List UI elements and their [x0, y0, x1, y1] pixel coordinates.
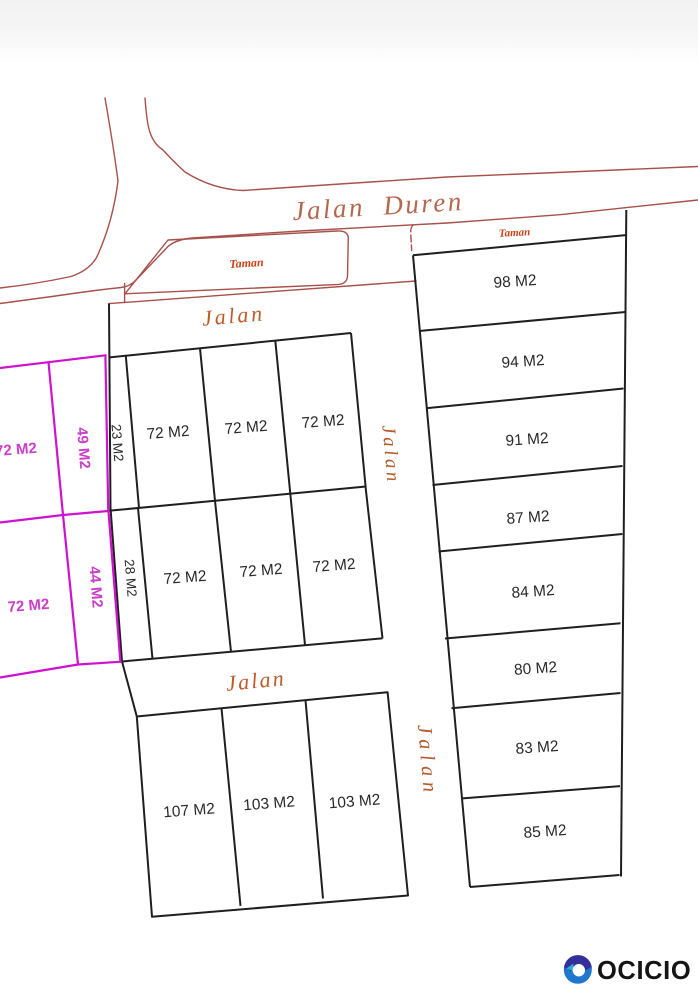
svg-text:85 M2: 85 M2 — [523, 822, 567, 842]
svg-text:83 M2: 83 M2 — [515, 738, 559, 758]
svg-text:72 M2: 72 M2 — [0, 440, 37, 460]
svg-text:91 M2: 91 M2 — [505, 430, 549, 450]
svg-text:72 M2: 72 M2 — [239, 561, 283, 581]
svg-text:Taman: Taman — [499, 226, 531, 240]
svg-text:72 M2: 72 M2 — [312, 556, 356, 576]
svg-text:72 M2: 72 M2 — [7, 596, 50, 616]
svg-text:72 M2: 72 M2 — [163, 568, 207, 588]
svg-text:44 M2: 44 M2 — [85, 566, 105, 609]
svg-text:49 M2: 49 M2 — [73, 427, 93, 470]
svg-text:72 M2: 72 M2 — [224, 418, 268, 438]
svg-text:72 M2: 72 M2 — [301, 412, 345, 432]
svg-text:Taman: Taman — [229, 255, 264, 271]
svg-text:72 M2: 72 M2 — [146, 423, 190, 443]
svg-text:80 M2: 80 M2 — [513, 659, 557, 679]
svg-text:94 M2: 94 M2 — [501, 352, 545, 372]
svg-text:28 M2: 28 M2 — [122, 559, 140, 598]
svg-text:87 M2: 87 M2 — [506, 508, 550, 528]
svg-text:98 M2: 98 M2 — [493, 272, 537, 292]
svg-text:84 M2: 84 M2 — [511, 582, 555, 602]
svg-text:OCICIO: OCICIO — [597, 957, 691, 985]
svg-text:23 M2: 23 M2 — [108, 424, 126, 463]
